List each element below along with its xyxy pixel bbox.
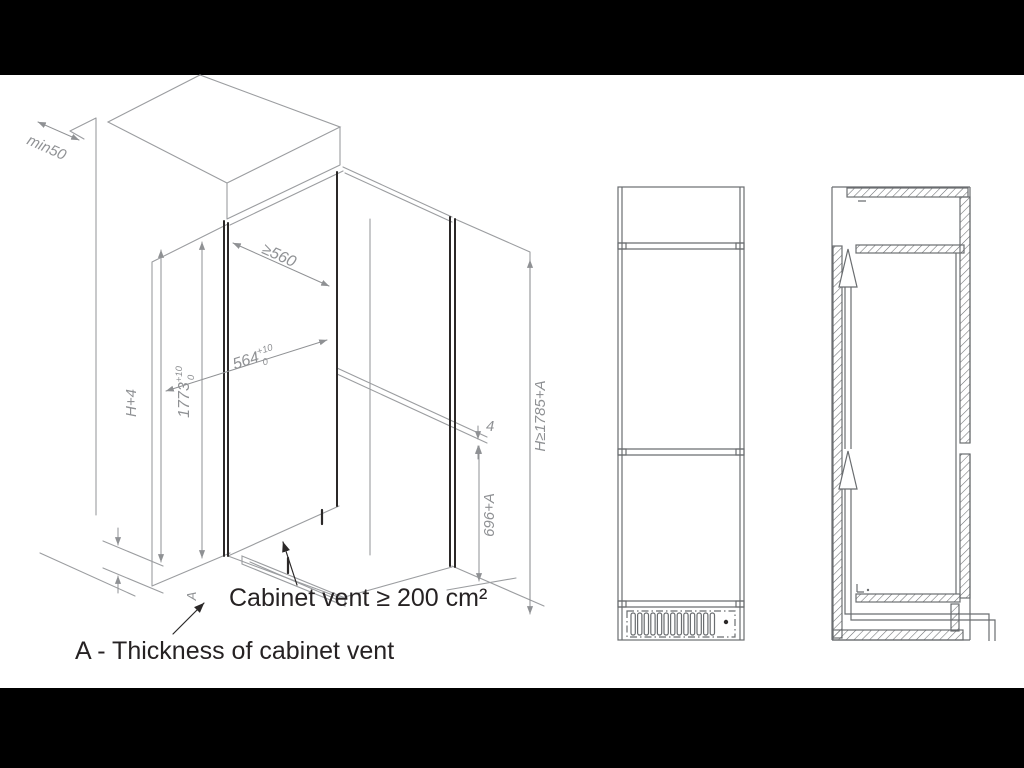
hatched-plinth-piece — [951, 604, 959, 631]
dim-text-top-gap: 4 — [486, 418, 494, 435]
hatched-base-floor — [833, 630, 963, 640]
dim-text-overall-height: H≥1785+A — [532, 380, 549, 451]
hatched-niche-top — [856, 245, 964, 253]
dim-text-vent-height: 696+A — [481, 493, 498, 537]
hatched-top-panel — [847, 188, 968, 197]
hatched-front-wall-upper — [960, 197, 970, 443]
hatched-niche-floor — [856, 594, 960, 602]
thickness-legend-label: A - Thickness of cabinet vent — [75, 637, 394, 665]
grille-fixing-dot — [724, 620, 728, 624]
vent-note-label: Cabinet vent ≥ 200 cm² — [229, 584, 487, 612]
hatched-front-wall-lower — [960, 454, 970, 598]
technical-drawing: min50 ≥560 564+100 1773+100 H+4 H≥1785+A… — [0, 0, 1024, 768]
hatched-rear-wall — [833, 246, 842, 638]
dim-text-thickness-marker: A — [184, 592, 199, 602]
dim-text-front-height: H+4 — [123, 389, 140, 417]
corner-dot — [867, 589, 869, 591]
screenshot-stage: min50 ≥560 564+100 1773+100 H+4 H≥1785+A… — [0, 0, 1024, 768]
